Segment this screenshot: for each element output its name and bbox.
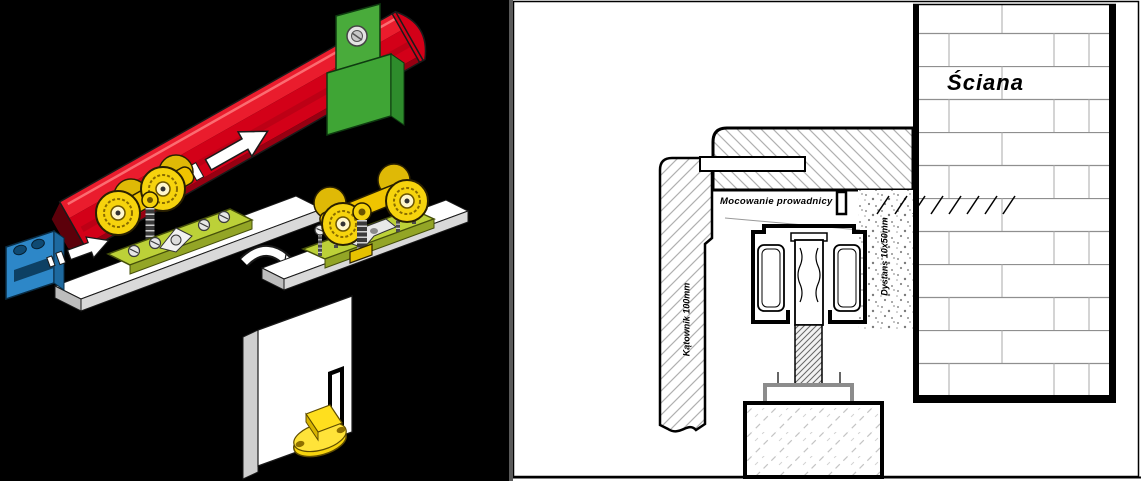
spacer-label: Dystans 10x50mm <box>880 211 893 303</box>
roller-wheel <box>386 180 428 222</box>
guide-mounting-label: Mocowanie prowadnicy <box>720 196 833 207</box>
plate-screw-icon <box>150 238 161 249</box>
roller-wheel <box>96 191 140 235</box>
door-section <box>745 403 882 477</box>
screenshot-root: Ściana Mocowanie prowadnicy Kątownik 100… <box>0 0 1141 481</box>
bracket-screw-icon <box>347 26 367 46</box>
roller-in-track <box>758 233 860 325</box>
wall-label: Ściana <box>928 70 1043 96</box>
wall-section <box>913 4 1116 403</box>
plate-screw-icon <box>129 246 140 257</box>
installation-cross-section <box>512 0 1141 481</box>
assembly-drawing <box>0 0 512 481</box>
panel-divider <box>509 0 513 481</box>
plate-screw-icon <box>199 220 210 231</box>
angle-bracket-label: Kątownik 100mm <box>682 274 695 366</box>
tongue-slot <box>700 157 805 171</box>
cross-section-drawing <box>512 0 1141 481</box>
door-bracket <box>765 385 852 403</box>
hanger-bolt <box>795 325 822 385</box>
plate-screw-icon <box>219 212 230 223</box>
exploded-assembly-illustration <box>0 0 512 481</box>
fastener-icon <box>837 192 846 214</box>
